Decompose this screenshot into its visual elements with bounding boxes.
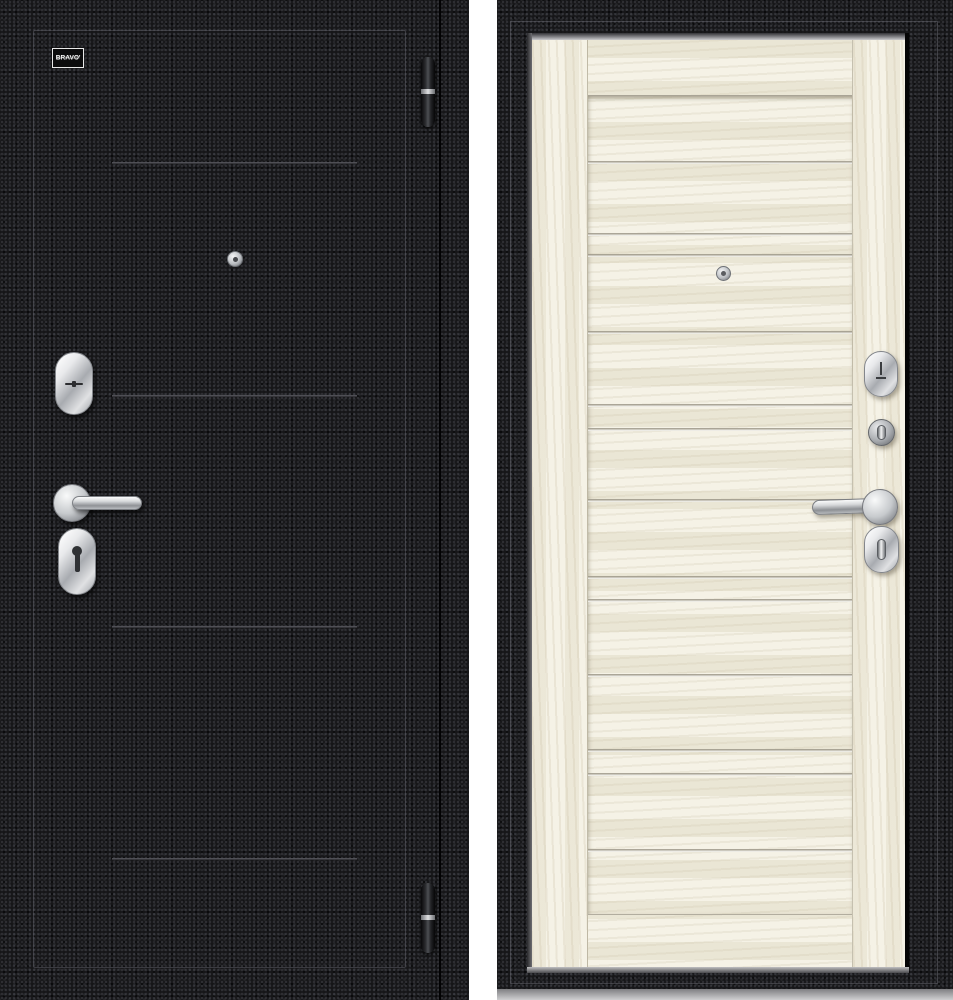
frame-opening — [527, 33, 909, 973]
peephole-lens — [721, 271, 726, 276]
groove-line — [588, 254, 852, 257]
frame-bevel-top — [527, 33, 909, 40]
night-latch-turn — [868, 419, 895, 446]
groove-line — [588, 331, 852, 334]
groove-line — [588, 161, 852, 164]
peephole-icon — [227, 251, 243, 267]
groove-line — [588, 499, 852, 502]
groove-line — [588, 404, 852, 407]
groove-line — [588, 749, 852, 752]
groove-line — [112, 162, 357, 164]
door-leaf-gap — [439, 0, 441, 1000]
lever-handle — [72, 496, 142, 510]
hinge-bottom — [421, 883, 435, 953]
keyhole-escutcheon — [58, 528, 96, 595]
keyhole-mark-icon — [880, 362, 882, 375]
hinge-top — [421, 57, 435, 127]
stile-left — [532, 40, 588, 967]
product-image-two-door-sides: BRAVO' ФАБРИКА ДВЕРЕЙ — [0, 0, 953, 1000]
cylinder-escutcheon — [864, 351, 898, 397]
groove-line — [588, 849, 852, 852]
interior-door-photo[interactable] — [497, 0, 953, 1000]
frame-bevel-right — [905, 33, 909, 973]
turn-button-icon — [877, 425, 886, 440]
euro-keyhole-icon — [72, 546, 82, 576]
thumbturn-lever-icon — [877, 539, 886, 560]
peephole-lens — [233, 257, 238, 262]
thumbturn-escutcheon — [864, 526, 899, 573]
photo-divider — [469, 0, 497, 1000]
keyhole-slit-icon — [65, 383, 83, 385]
exterior-door-photo[interactable]: BRAVO' ФАБРИКА ДВЕРЕЙ — [0, 0, 469, 1000]
groove-line — [588, 599, 852, 602]
hinge-band — [421, 915, 435, 920]
cylinder-escutcheon — [55, 352, 93, 415]
frame-bevel-bottom — [527, 967, 909, 973]
groove-line — [588, 674, 852, 677]
photo-bottom-strip — [497, 989, 953, 1000]
groove-line — [112, 395, 357, 397]
door-leaf-wood — [532, 40, 905, 967]
peephole-icon — [716, 266, 731, 281]
groove-line — [112, 626, 357, 628]
handle-rose — [862, 489, 898, 525]
groove-line — [588, 428, 852, 431]
hinge-band — [421, 89, 435, 94]
groove-line — [588, 773, 852, 776]
groove-line — [588, 233, 852, 236]
groove-line — [112, 858, 357, 860]
groove-line — [588, 576, 852, 579]
